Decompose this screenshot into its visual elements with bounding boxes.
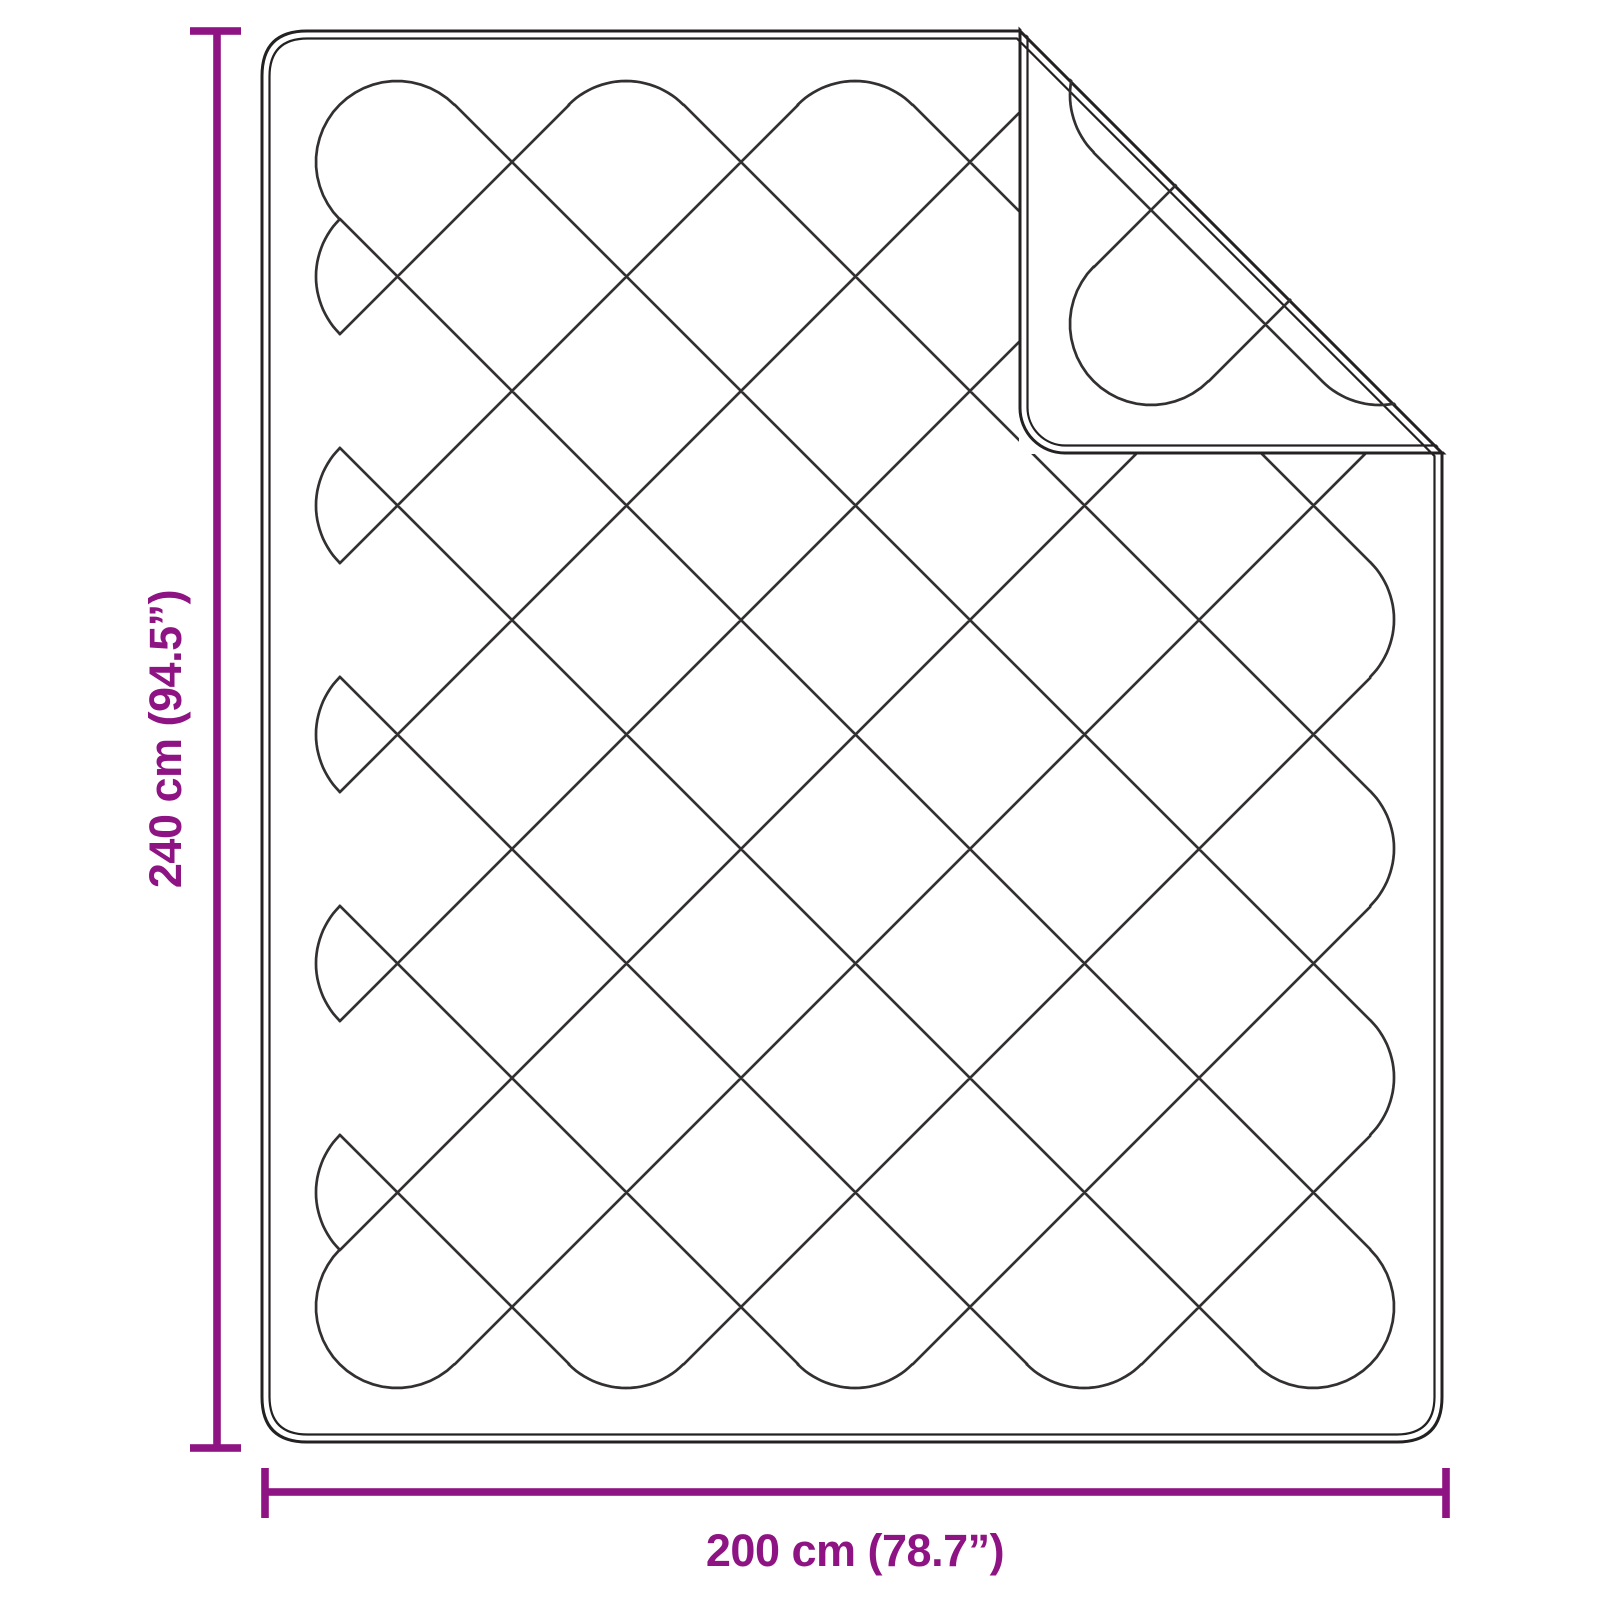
- width-dimension-cap-left: [261, 1468, 269, 1518]
- folded-corner-flap: [1020, 0, 1600, 453]
- quilt-pattern: [316, 81, 1394, 1388]
- width-dimension-line: [265, 1488, 1446, 1496]
- height-dimension-line: [213, 31, 221, 1448]
- height-dimension-cap-top: [190, 27, 241, 35]
- width-dimension-label: 200 cm (78.7”): [706, 1525, 1004, 1576]
- width-dimension: 200 cm (78.7”): [261, 1468, 1450, 1576]
- height-dimension-label: 240 cm (94.5”): [140, 590, 191, 888]
- height-dimension: 240 cm (94.5”): [140, 27, 241, 1452]
- diagram-canvas: 240 cm (94.5”) 200 cm (78.7”): [0, 0, 1600, 1600]
- height-dimension-cap-bottom: [190, 1444, 241, 1452]
- width-dimension-cap-right: [1442, 1468, 1450, 1518]
- product-dimension-diagram: 240 cm (94.5”) 200 cm (78.7”): [0, 0, 1600, 1600]
